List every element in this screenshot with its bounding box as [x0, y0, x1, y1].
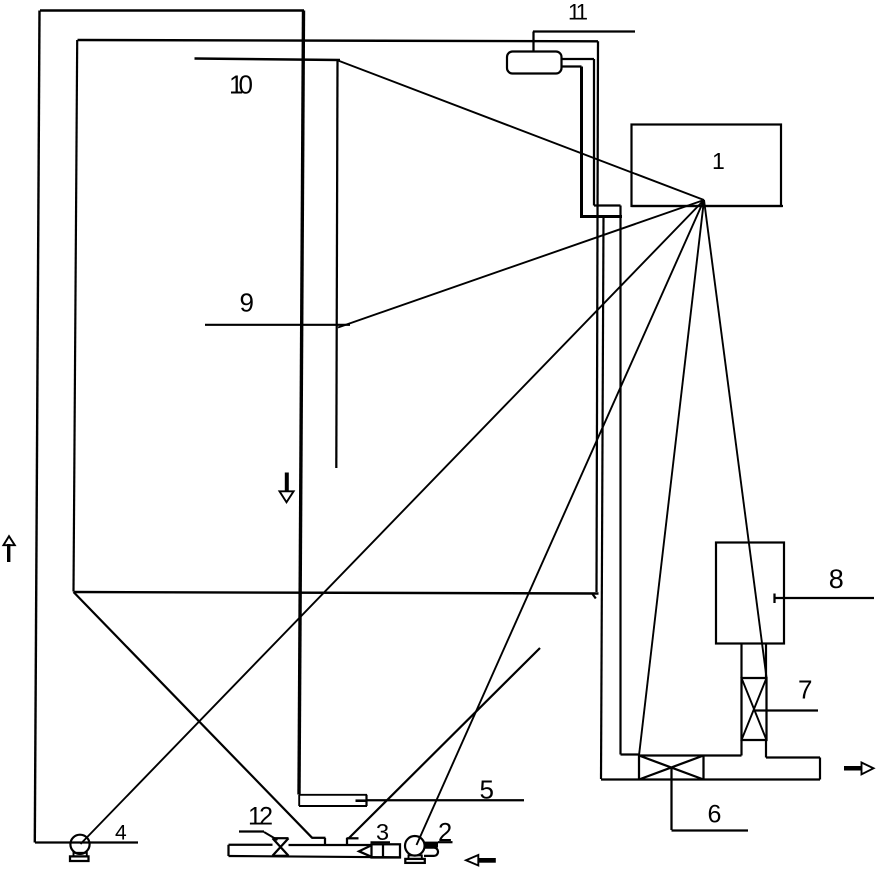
svg-text:8: 8: [829, 564, 844, 594]
svg-text:11: 11: [568, 0, 588, 25]
svg-text:7: 7: [798, 675, 812, 705]
svg-text:2: 2: [438, 819, 452, 847]
svg-text:10: 10: [229, 70, 253, 100]
svg-text:4: 4: [115, 822, 127, 845]
svg-text:9: 9: [240, 288, 254, 318]
svg-text:5: 5: [480, 775, 494, 805]
svg-text:3: 3: [376, 819, 389, 845]
svg-text:6: 6: [708, 801, 722, 829]
svg-text:1: 1: [712, 148, 725, 174]
svg-text:12: 12: [248, 803, 273, 831]
